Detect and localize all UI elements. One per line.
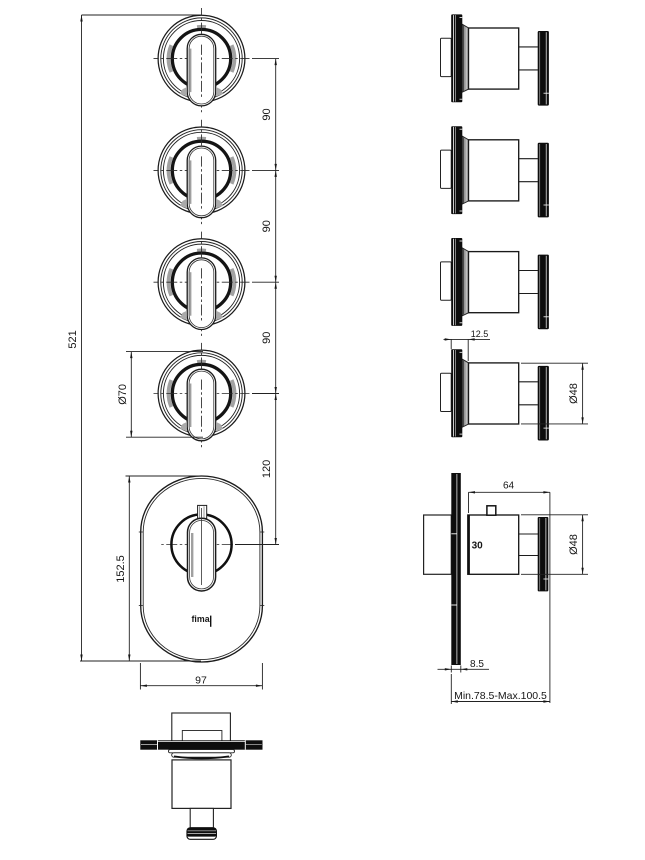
- svg-text:90: 90: [261, 332, 273, 344]
- svg-text:64: 64: [503, 481, 515, 492]
- svg-text:97: 97: [195, 675, 207, 687]
- svg-text:30: 30: [472, 541, 484, 552]
- svg-text:8.5: 8.5: [470, 659, 484, 670]
- svg-text:120: 120: [261, 460, 273, 478]
- svg-text:fima: fima: [192, 614, 210, 624]
- svg-text:Min.78.5-Max.100.5: Min.78.5-Max.100.5: [454, 690, 547, 702]
- svg-text:Ø48: Ø48: [568, 383, 580, 404]
- svg-text:90: 90: [261, 220, 273, 232]
- svg-text:152.5: 152.5: [115, 555, 127, 583]
- svg-text:Ø48: Ø48: [568, 534, 580, 555]
- svg-text:90: 90: [261, 108, 273, 120]
- svg-text:521: 521: [67, 330, 79, 348]
- svg-text:Ø70: Ø70: [117, 384, 129, 405]
- svg-text:12.5: 12.5: [471, 329, 489, 339]
